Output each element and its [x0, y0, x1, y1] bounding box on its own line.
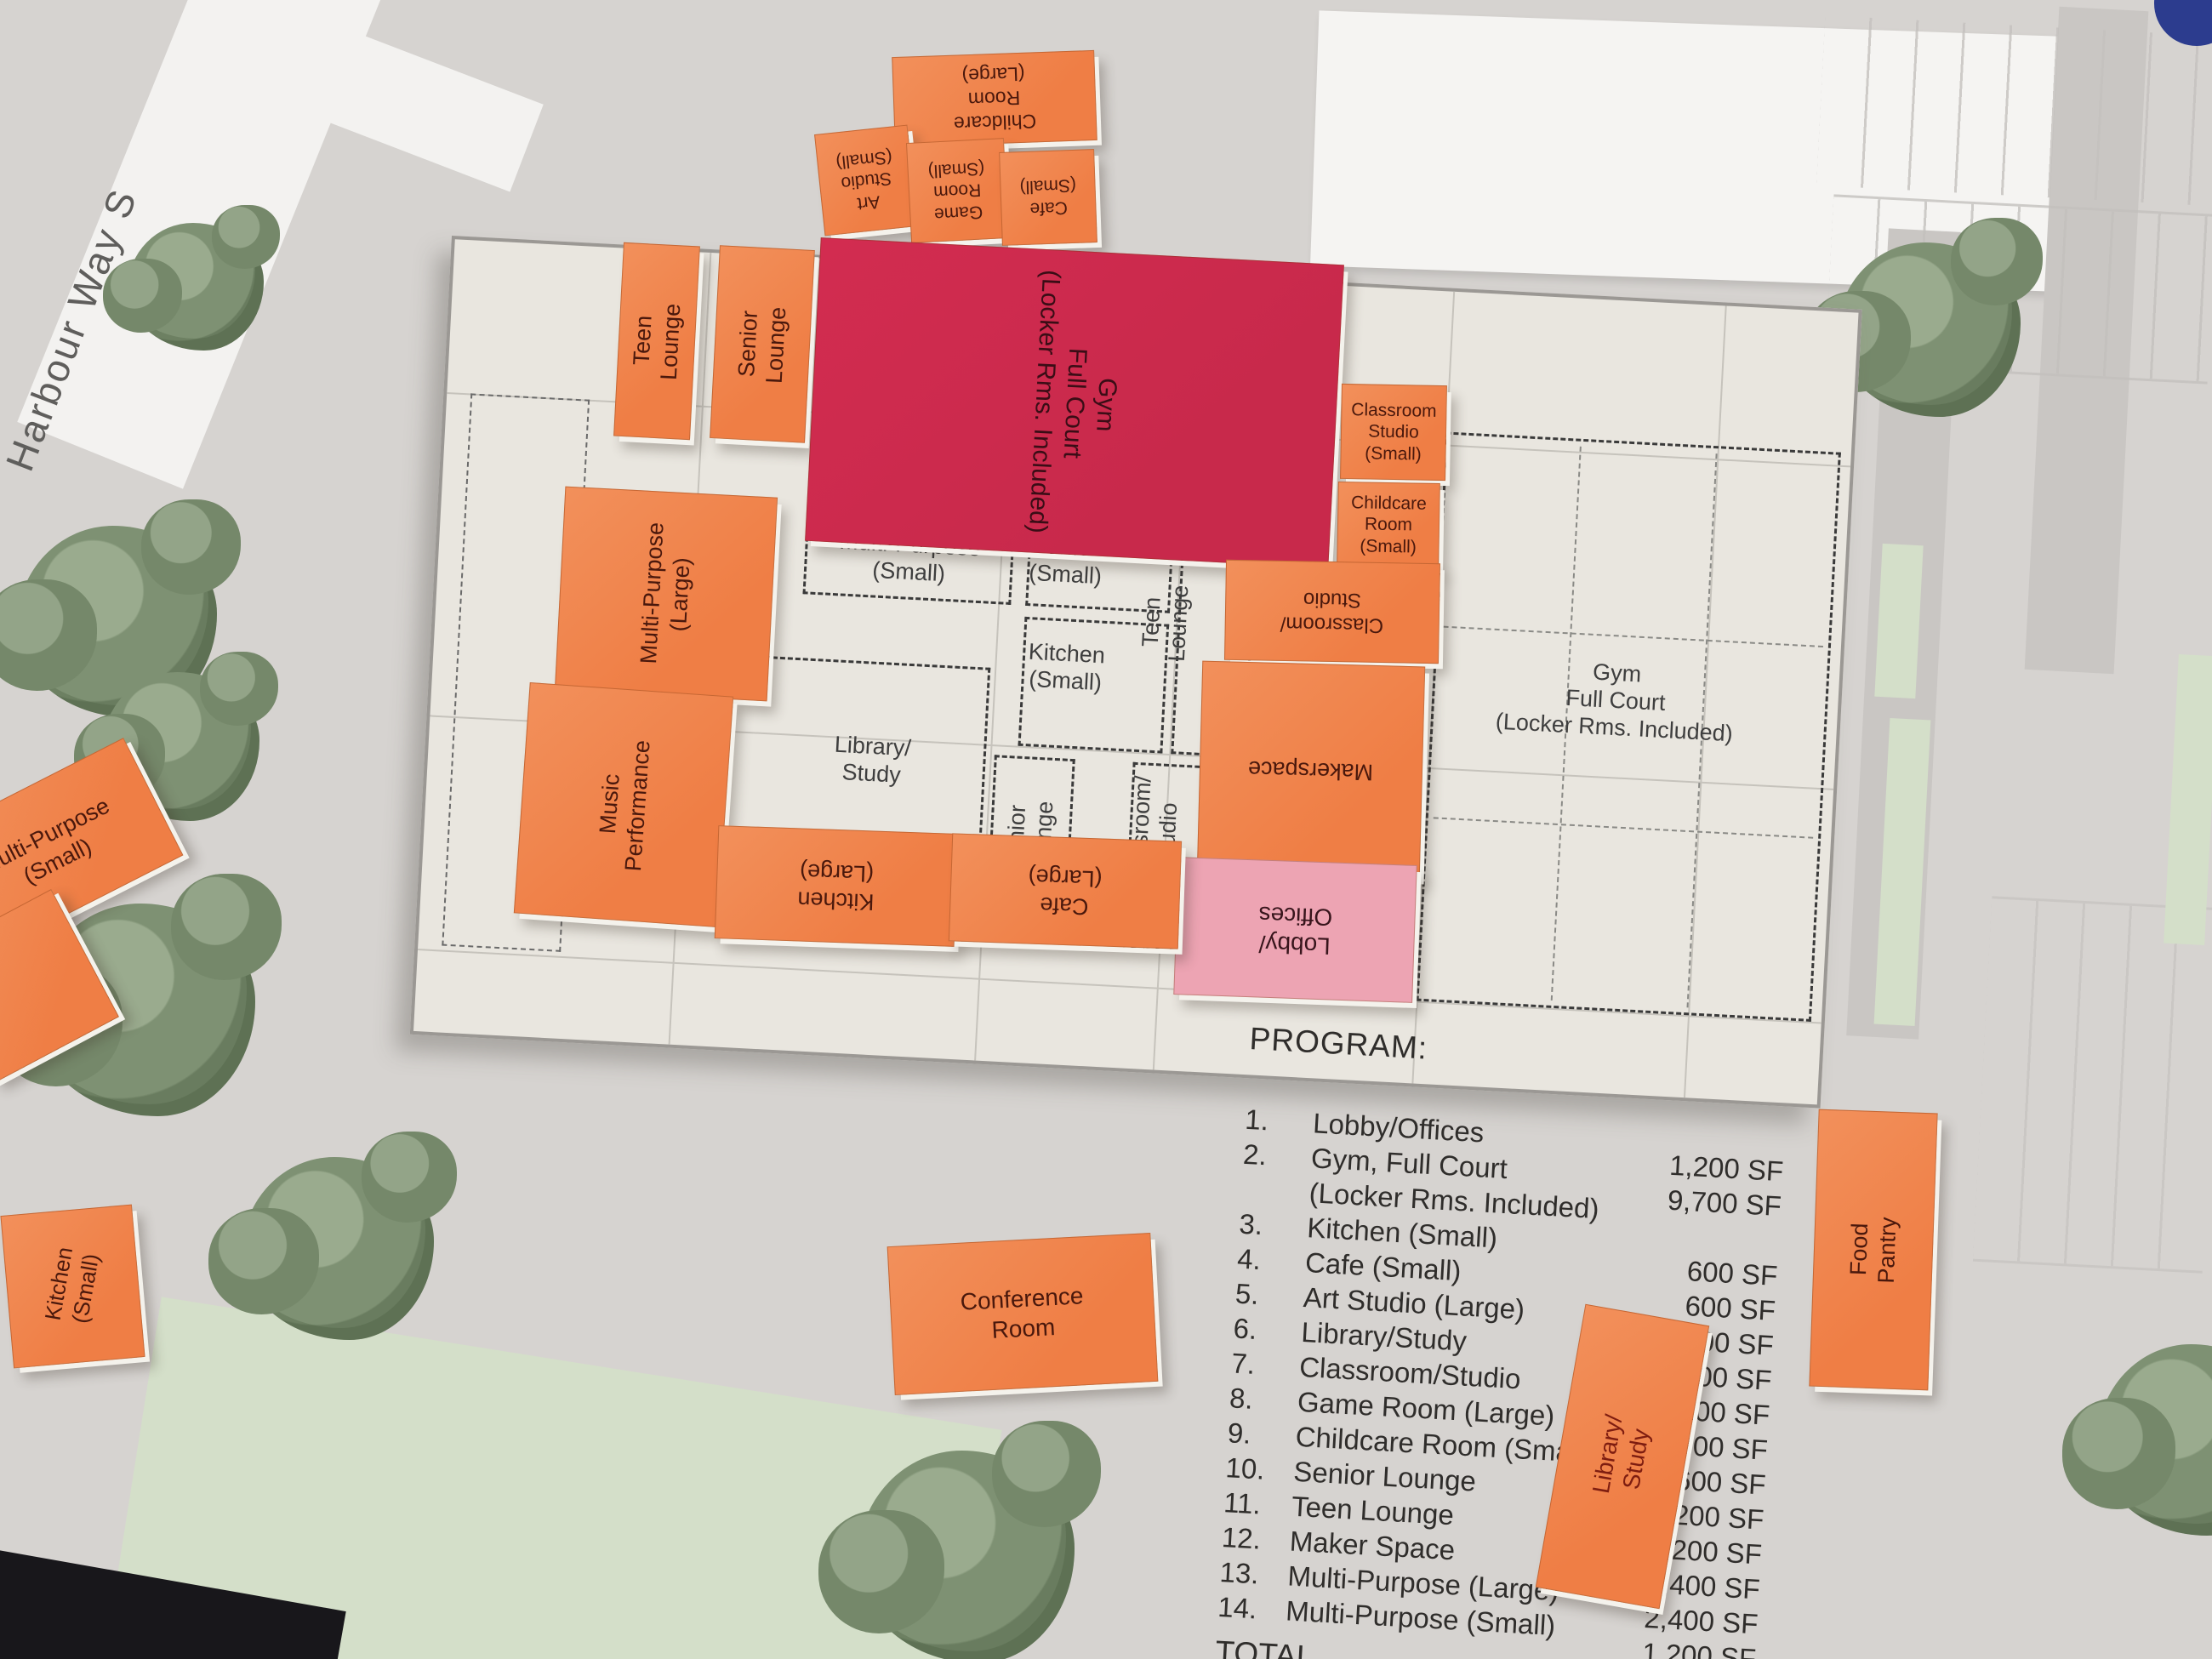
piece-label: Multi-Purpose (Large) [635, 522, 698, 666]
parking-lot [1973, 896, 2212, 1274]
piece-makerspace: Makerspace [1197, 661, 1425, 880]
grid-line [1434, 817, 1813, 838]
piece-label: Lobby/ Offices [1257, 899, 1333, 960]
tree [128, 223, 264, 351]
plan-label-kitchen-small: Kitchen (Small) [1005, 637, 1126, 698]
piece-senior-lounge: Senior Lounge [710, 245, 815, 443]
piece-childcare-room-small: Childcare Room (Small) [1337, 482, 1440, 568]
piece-teen-lounge: Teen Lounge [613, 242, 700, 440]
tree [1838, 242, 2021, 417]
piece-label: Library/ Study [1587, 1412, 1657, 1501]
piece-label: Multi-Purpose (Small) [0, 791, 127, 905]
piece-label: Music Performance [591, 738, 656, 873]
piece-label: Teen Lounge [627, 301, 687, 380]
piece-label: Makerspace [1248, 755, 1374, 786]
site-plan-photo: Harbour Way S Multi-Purpose (Small) [0, 0, 2212, 1659]
tree [242, 1157, 434, 1340]
piece-label: Cafe (Small) [1019, 174, 1077, 220]
piece-game-room-small: Game Room (Small) [906, 138, 1009, 243]
piece-label: Kitchen (Large) [797, 857, 875, 915]
piece-label: Cafe (Large) [1027, 862, 1103, 921]
piece-classroom-studio: Classroom/ Studio [1224, 560, 1440, 664]
piece-label: Gym Full Court (Locker Rms. Included) [1021, 269, 1128, 537]
grass-strip [1874, 544, 1923, 698]
piece-food-pantry: Food Pantry [1809, 1109, 1937, 1391]
piece-label: Game Room (Small) [927, 157, 987, 225]
piece-label: Food Pantry [1844, 1216, 1903, 1284]
piece-childcare-room-large: Childcare Room (Large) [892, 50, 1097, 147]
piece-label: Classroom Studio (Small) [1350, 399, 1437, 466]
grass-strip [2164, 654, 2212, 945]
piece-label: Childcare Room (Small) [1350, 492, 1427, 558]
tree [2097, 1344, 2212, 1536]
piece-multi-purpose-large: Multi-Purpose (Large) [555, 487, 778, 702]
piece-label: Classroom/ Studio [1280, 586, 1384, 638]
piece-music-performance: Music Performance [514, 682, 733, 927]
piece-kitchen-small-edge: Kitchen (Small) [0, 1205, 145, 1369]
program-total-label: TOTAL [1214, 1634, 1314, 1659]
parking-lot [1816, 15, 2212, 206]
piece-classroom-studio-small: Classroom Studio (Small) [1340, 384, 1447, 481]
tree [858, 1451, 1075, 1659]
piece-art-studio-small: Art Studio (Small) [814, 125, 918, 237]
plan-label-library-study: Library/ Study [794, 729, 949, 791]
piece-cafe-large: Cafe (Large) [949, 833, 1182, 949]
piece-gym-full-court: Gym Full Court (Locker Rms. Included) [805, 237, 1344, 568]
piece-lobby-offices: Lobby/ Offices [1173, 857, 1417, 1003]
piece-label: Art Studio (Small) [835, 145, 898, 215]
piece-cafe-small: Cafe (Small) [999, 149, 1097, 246]
piece-label: Kitchen (Small) [40, 1246, 106, 1327]
piece-kitchen-large: Kitchen (Large) [715, 825, 958, 947]
grid-line [1443, 626, 1822, 647]
piece-label: Childcare Room (Large) [952, 61, 1037, 135]
piece-label: Conference Room [960, 1282, 1086, 1347]
piece-conference-room: Conference Room [887, 1233, 1159, 1395]
piece-label: Senior Lounge [732, 296, 793, 392]
plan-label-teen-lounge: Teen Lounge [1136, 562, 1196, 683]
